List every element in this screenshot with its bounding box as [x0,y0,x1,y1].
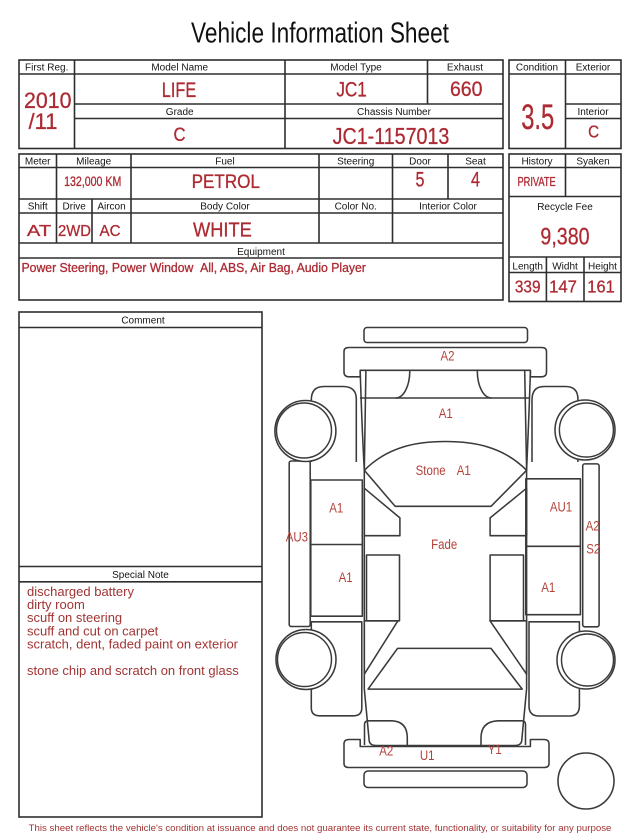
svg-text:First Reg.: First Reg. [25,63,68,74]
svg-text:Seat: Seat [465,157,486,168]
svg-text:C: C [173,124,185,145]
svg-text:Aircon: Aircon [97,202,125,213]
svg-text:Recycle Fee: Recycle Fee [537,202,593,213]
svg-text:9,380: 9,380 [540,223,589,250]
svg-text:Model Type: Model Type [330,63,382,74]
svg-text:Equipment: Equipment [237,247,285,258]
svg-text:Power Steering, Power Window: Power Steering, Power Window All, ABS, A… [22,261,366,275]
svg-text:/11: /11 [29,109,58,134]
svg-text:A2: A2 [586,519,600,534]
svg-text:JC1-1157013: JC1-1157013 [333,123,450,149]
svg-text:JC1: JC1 [336,78,367,102]
svg-text:Door: Door [409,157,431,168]
svg-text:Model Name: Model Name [151,63,208,74]
svg-text:AT: AT [27,222,51,239]
svg-text:Comment: Comment [121,316,165,327]
svg-text:AU3: AU3 [286,529,308,544]
svg-text:A1: A1 [339,570,353,585]
svg-text:Height: Height [588,261,617,272]
svg-text:scratch, dent, faded paint on: scratch, dent, faded paint on exterior [27,637,239,652]
svg-text:4: 4 [471,167,480,191]
svg-text:Drive: Drive [63,202,87,213]
svg-text:This sheet reflects the vehicl: This sheet reflects the vehicle's condit… [29,823,612,834]
svg-text:Color No.: Color No. [335,202,377,213]
svg-text:WHITE: WHITE [193,220,252,242]
svg-text:Chassis Number: Chassis Number [357,107,432,118]
svg-text:2WD: 2WD [58,223,91,240]
svg-text:Widht: Widht [552,261,578,272]
svg-text:Fade: Fade [431,537,457,552]
svg-text:S2: S2 [586,542,600,557]
svg-text:A1: A1 [329,501,343,516]
svg-text:LIFE: LIFE [162,79,196,103]
svg-text:A1: A1 [457,463,471,478]
svg-text:Special Note: Special Note [112,570,169,581]
svg-text:Fuel: Fuel [215,157,234,168]
svg-text:stone chip and scratch on fron: stone chip and scratch on front glass [27,663,239,678]
svg-text:Interior: Interior [577,107,609,118]
svg-text:Stone: Stone [416,463,446,478]
svg-text:A1: A1 [439,406,453,421]
svg-text:147: 147 [549,276,577,297]
svg-text:Exhaust: Exhaust [447,63,483,74]
svg-text:History: History [521,157,552,168]
svg-text:Length: Length [512,261,543,272]
svg-text:AC: AC [99,223,120,240]
svg-text:AU1: AU1 [550,499,572,514]
svg-text:Grade: Grade [166,107,194,118]
svg-text:A2: A2 [379,744,393,759]
svg-text:Body Color: Body Color [200,202,250,213]
svg-text:Condition: Condition [516,63,558,74]
svg-text:Steering: Steering [337,157,374,168]
svg-text:339: 339 [515,276,541,296]
svg-text:Meter: Meter [25,157,51,168]
svg-text:A1: A1 [541,580,555,595]
svg-text:C: C [588,121,599,142]
svg-text:Shift: Shift [28,202,48,213]
svg-text:3.5: 3.5 [521,98,554,137]
svg-text:PRIVATE: PRIVATE [517,176,555,190]
svg-text:Syaken: Syaken [576,157,609,168]
svg-text:132,000 KM: 132,000 KM [64,174,121,190]
svg-text:Exterior: Exterior [576,63,611,74]
svg-text:Y1: Y1 [488,742,502,757]
svg-text:Interior Color: Interior Color [419,202,477,213]
svg-text:660: 660 [450,78,483,101]
svg-text:U1: U1 [420,748,435,763]
svg-text:A2: A2 [440,349,454,364]
svg-text:Vehicle Information Sheet: Vehicle Information Sheet [191,16,450,49]
svg-text:Mileage: Mileage [76,157,111,168]
svg-text:PETROL: PETROL [192,171,260,192]
svg-text:161: 161 [587,276,614,297]
svg-text:5: 5 [416,167,425,191]
